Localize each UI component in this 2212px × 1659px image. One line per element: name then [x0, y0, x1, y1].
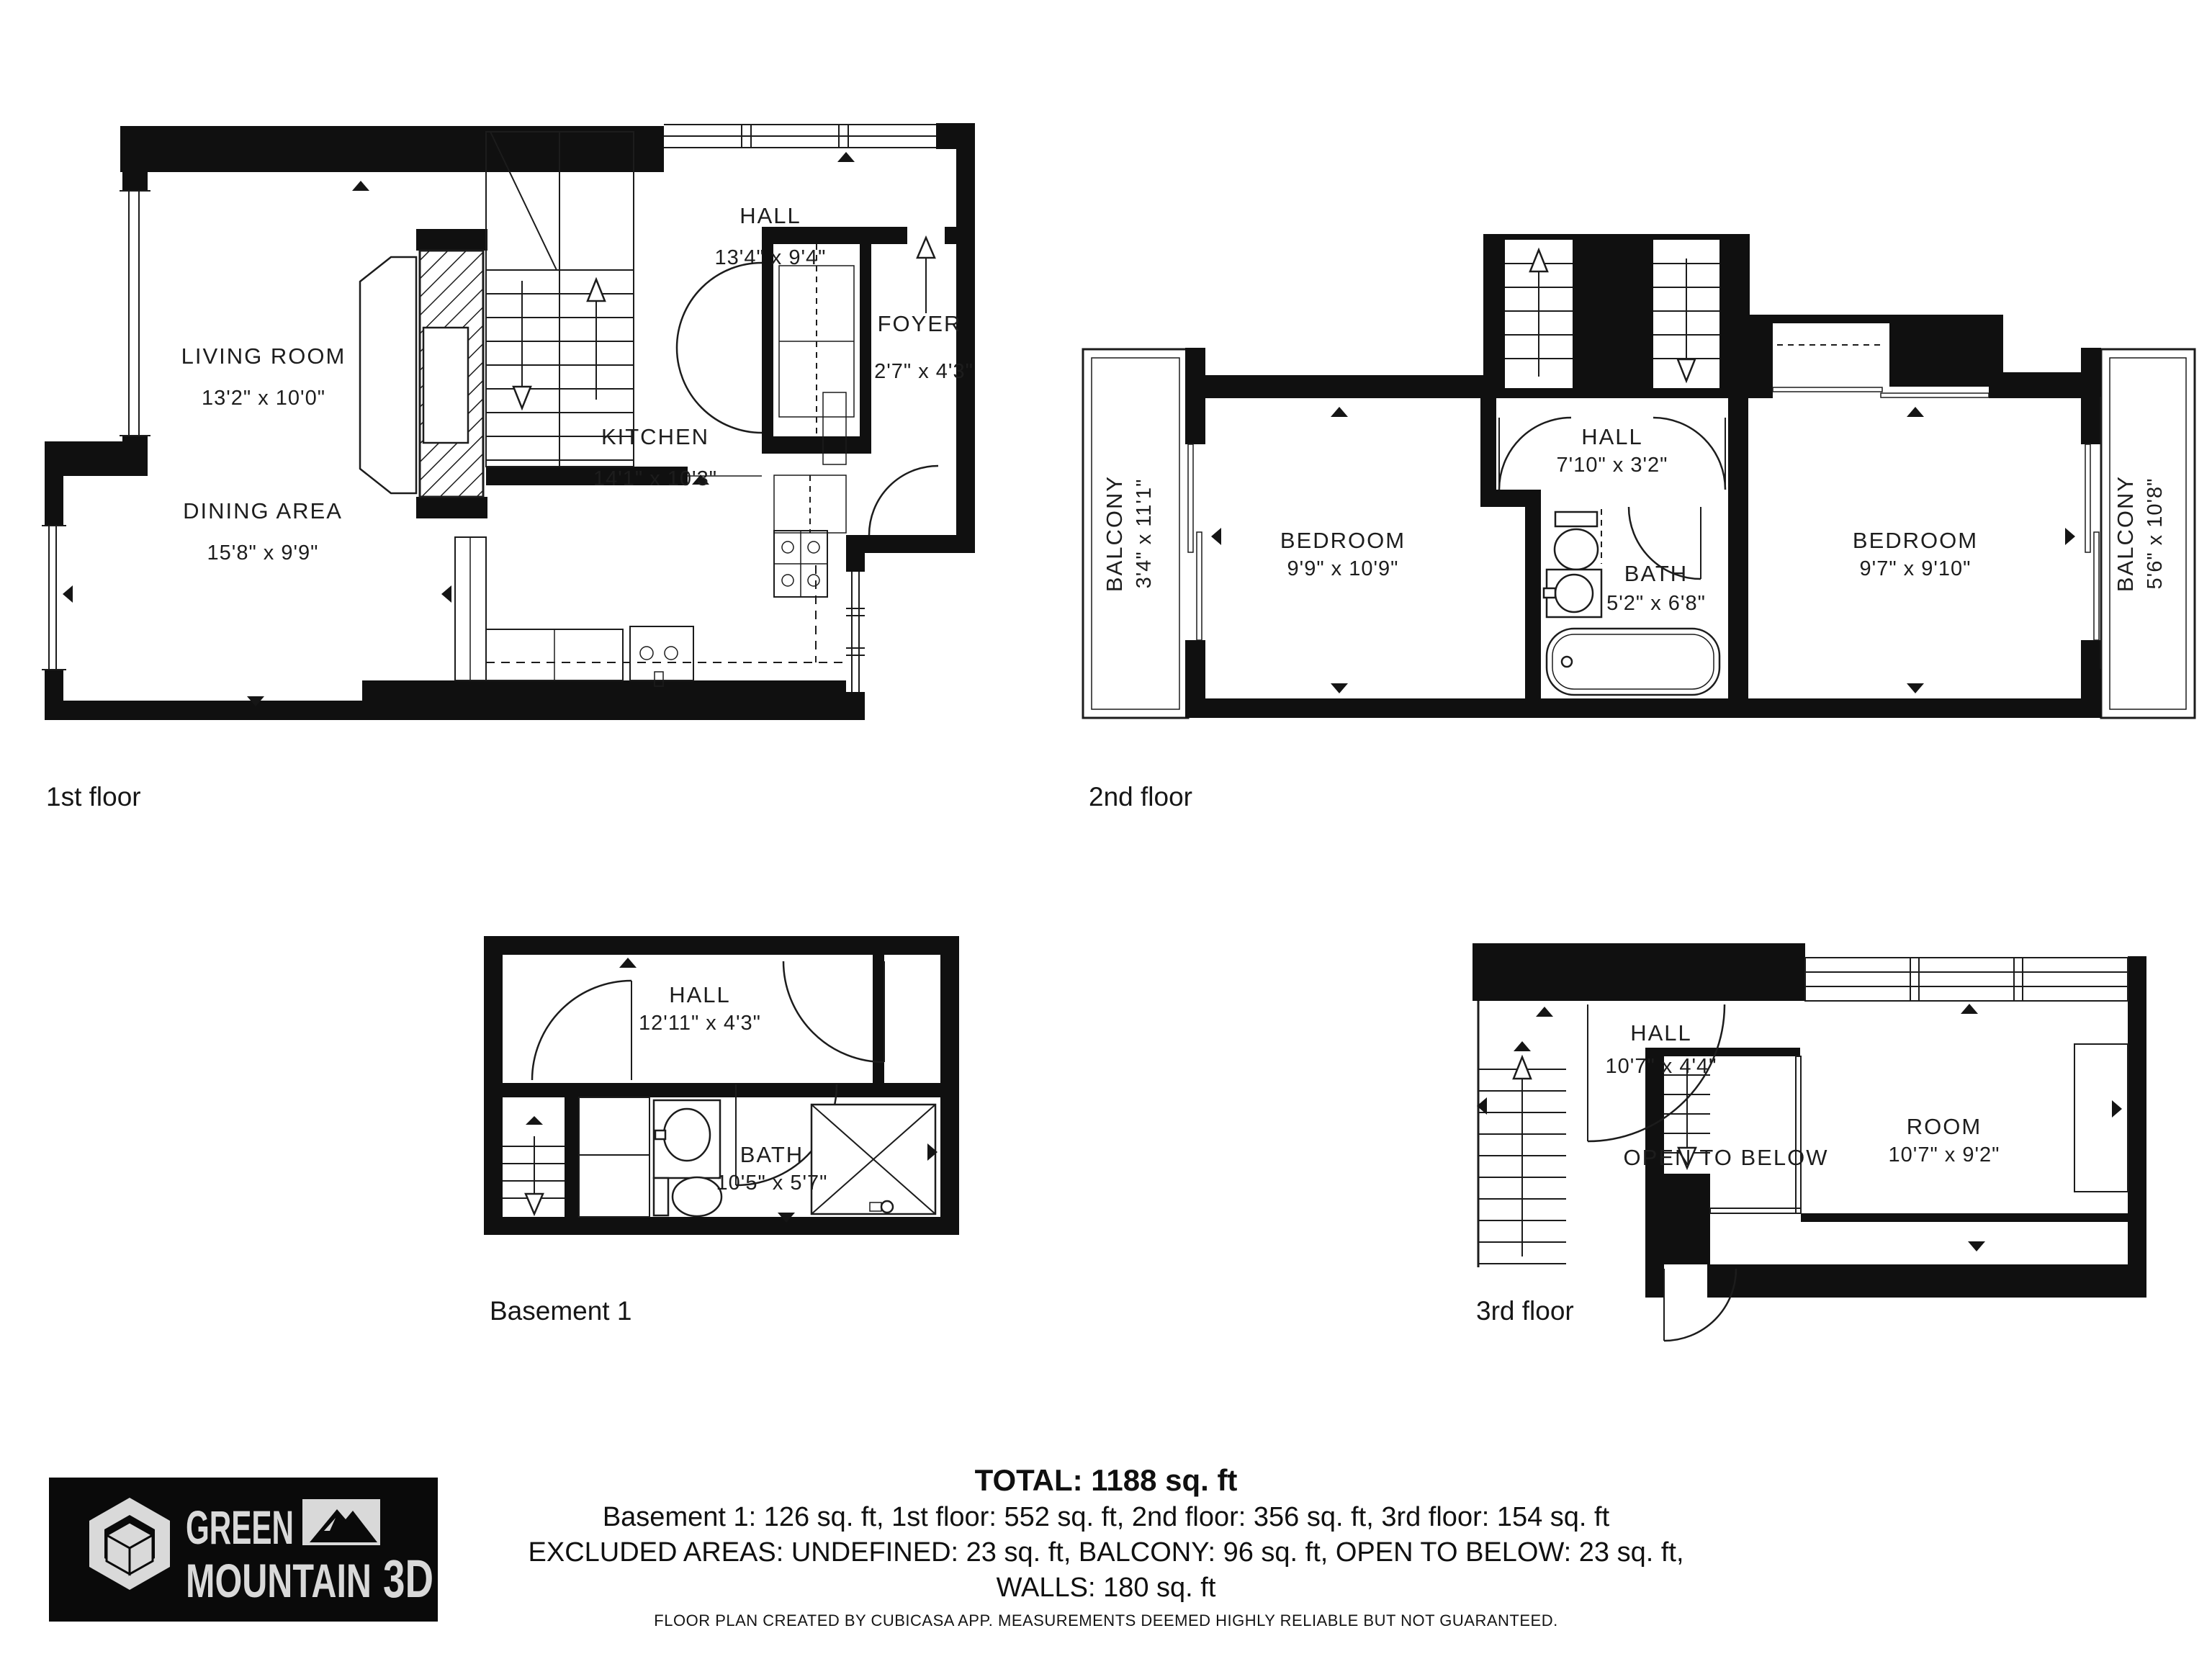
hall-label: HALL: [1581, 424, 1643, 449]
hall-double-doors: [677, 263, 762, 433]
second-floor-plan: BALCONY 3'4" x 11'1": [1080, 234, 2200, 738]
toilet-bowl: [673, 1177, 721, 1216]
dining-area-label: DINING AREA: [183, 498, 343, 523]
excluded-areas: EXCLUDED AREAS: UNDEFINED: 23 sq. ft, BA…: [314, 1535, 1898, 1570]
living-room-label: LIVING ROOM: [181, 343, 346, 369]
toilet-bowl: [1555, 529, 1598, 570]
toilet-tank: [654, 1178, 668, 1215]
fireplace: [360, 251, 483, 497]
walls-area: WALLS: 180 sq. ft: [314, 1570, 1898, 1606]
balcony-right-dims: 5'6" x 10'8": [2144, 478, 2167, 590]
sink-basin: [664, 1109, 710, 1161]
foyer-dims: 2'7" x 4'3": [874, 360, 974, 383]
first-floor-plan: LIVING ROOM 13'2" x 10'0" DINING AREA 15…: [40, 90, 976, 752]
third-floor-caption: 3rd floor: [1476, 1296, 1574, 1326]
first-floor-caption: 1st floor: [46, 782, 141, 812]
floorplan-sheet: LIVING ROOM 13'2" x 10'0" DINING AREA 15…: [0, 0, 2212, 1659]
hall-dims: 7'10" x 3'2": [1557, 454, 1668, 477]
stairs-up-arrow: [1514, 1057, 1531, 1079]
exterior-door-gap: [1664, 1264, 1707, 1298]
bath-dims: 5'2" x 6'8": [1606, 592, 1706, 615]
hall-label: HALL: [669, 982, 731, 1007]
bedroom-left-dims: 9'9" x 10'9": [1287, 557, 1399, 580]
hall-dims: 13'4" x 9'4": [715, 246, 827, 269]
bedroom-left-label: BEDROOM: [1280, 528, 1406, 553]
windows: [1805, 958, 2128, 1001]
second-floor-caption: 2nd floor: [1089, 782, 1192, 812]
stairs-main: [1478, 1041, 1566, 1264]
balcony-left-dims: 3'4" x 11'1": [1133, 479, 1156, 589]
green-mountain-3d-logo: GREEN MOUNTAIN 3D: [49, 1478, 438, 1622]
mountain-icon: [302, 1499, 380, 1545]
kitchen-dims: 14'1" x 10'3": [593, 467, 717, 490]
logo-word-green: GREEN: [186, 1501, 294, 1554]
basement-caption: Basement 1: [490, 1296, 631, 1326]
third-floor-plan: HALL 10'7" x 4'4" ROOM 10'7" x 9'2" OPEN…: [1473, 936, 2153, 1346]
sink-tap: [1544, 588, 1555, 598]
bedroom-right-dims: 9'7" x 9'10": [1860, 557, 1972, 580]
staircase: [486, 132, 634, 467]
balcony-right-label: BALCONY: [2113, 475, 2138, 592]
bath-label: BATH: [740, 1142, 804, 1167]
shower-head: [881, 1201, 893, 1213]
hall-label: HALL: [1630, 1020, 1692, 1046]
total-area: TOTAL: 1188 sq. ft: [314, 1462, 1898, 1500]
foyer-label: FOYER: [878, 311, 962, 336]
disclaimer-text: FLOOR PLAN CREATED BY CUBICASA APP. MEAS…: [0, 1611, 2212, 1630]
hall-dims: 12'11" x 4'3": [639, 1012, 761, 1035]
open-to-below-label: OPEN TO BELOW: [1624, 1145, 1829, 1170]
dining-area-dims: 15'8" x 9'9": [207, 541, 319, 565]
floor-breakdown: Basement 1: 126 sq. ft, 1st floor: 552 s…: [314, 1500, 1898, 1535]
foyer-closet: [773, 244, 860, 436]
area-summary: TOTAL: 1188 sq. ft Basement 1: 126 sq. f…: [314, 1462, 1898, 1606]
room-label: ROOM: [1907, 1114, 1982, 1139]
living-room-dims: 13'2" x 10'0": [202, 387, 325, 410]
hall-label: HALL: [739, 203, 801, 228]
basement-plan: HALL 12'11" x 4'3" BATH 10'5" x 5'7": [484, 936, 963, 1238]
balcony-left-label: BALCONY: [1102, 475, 1127, 592]
sink-basin: [1555, 575, 1593, 612]
fireplace-bay: [360, 257, 416, 493]
logo-word-mountain: MOUNTAIN: [186, 1554, 372, 1607]
tub-tap: [1562, 657, 1572, 667]
walls: [1473, 943, 2146, 1298]
hall-dims: 10'7" x 4'4": [1606, 1055, 1717, 1078]
bath-dims: 10'5" x 5'7": [716, 1172, 828, 1195]
toilet-tank: [1555, 512, 1597, 526]
sink-tap: [655, 1130, 665, 1139]
bath-label: BATH: [1624, 561, 1688, 586]
logo-word-3d: 3D: [383, 1549, 433, 1609]
stairs: [503, 1116, 565, 1217]
foyer-entry-door: [869, 238, 938, 535]
bedroom-right-label: BEDROOM: [1853, 528, 1978, 553]
stairs-up-arrow: [588, 279, 605, 301]
railing: [1710, 1056, 1801, 1213]
closet: [2074, 1044, 2128, 1192]
room-dims: 10'7" x 9'2": [1889, 1143, 2000, 1166]
stairs-down-arrow: [513, 387, 531, 408]
kitchen-label: KITCHEN: [601, 424, 709, 449]
right-recess: [884, 955, 940, 1092]
